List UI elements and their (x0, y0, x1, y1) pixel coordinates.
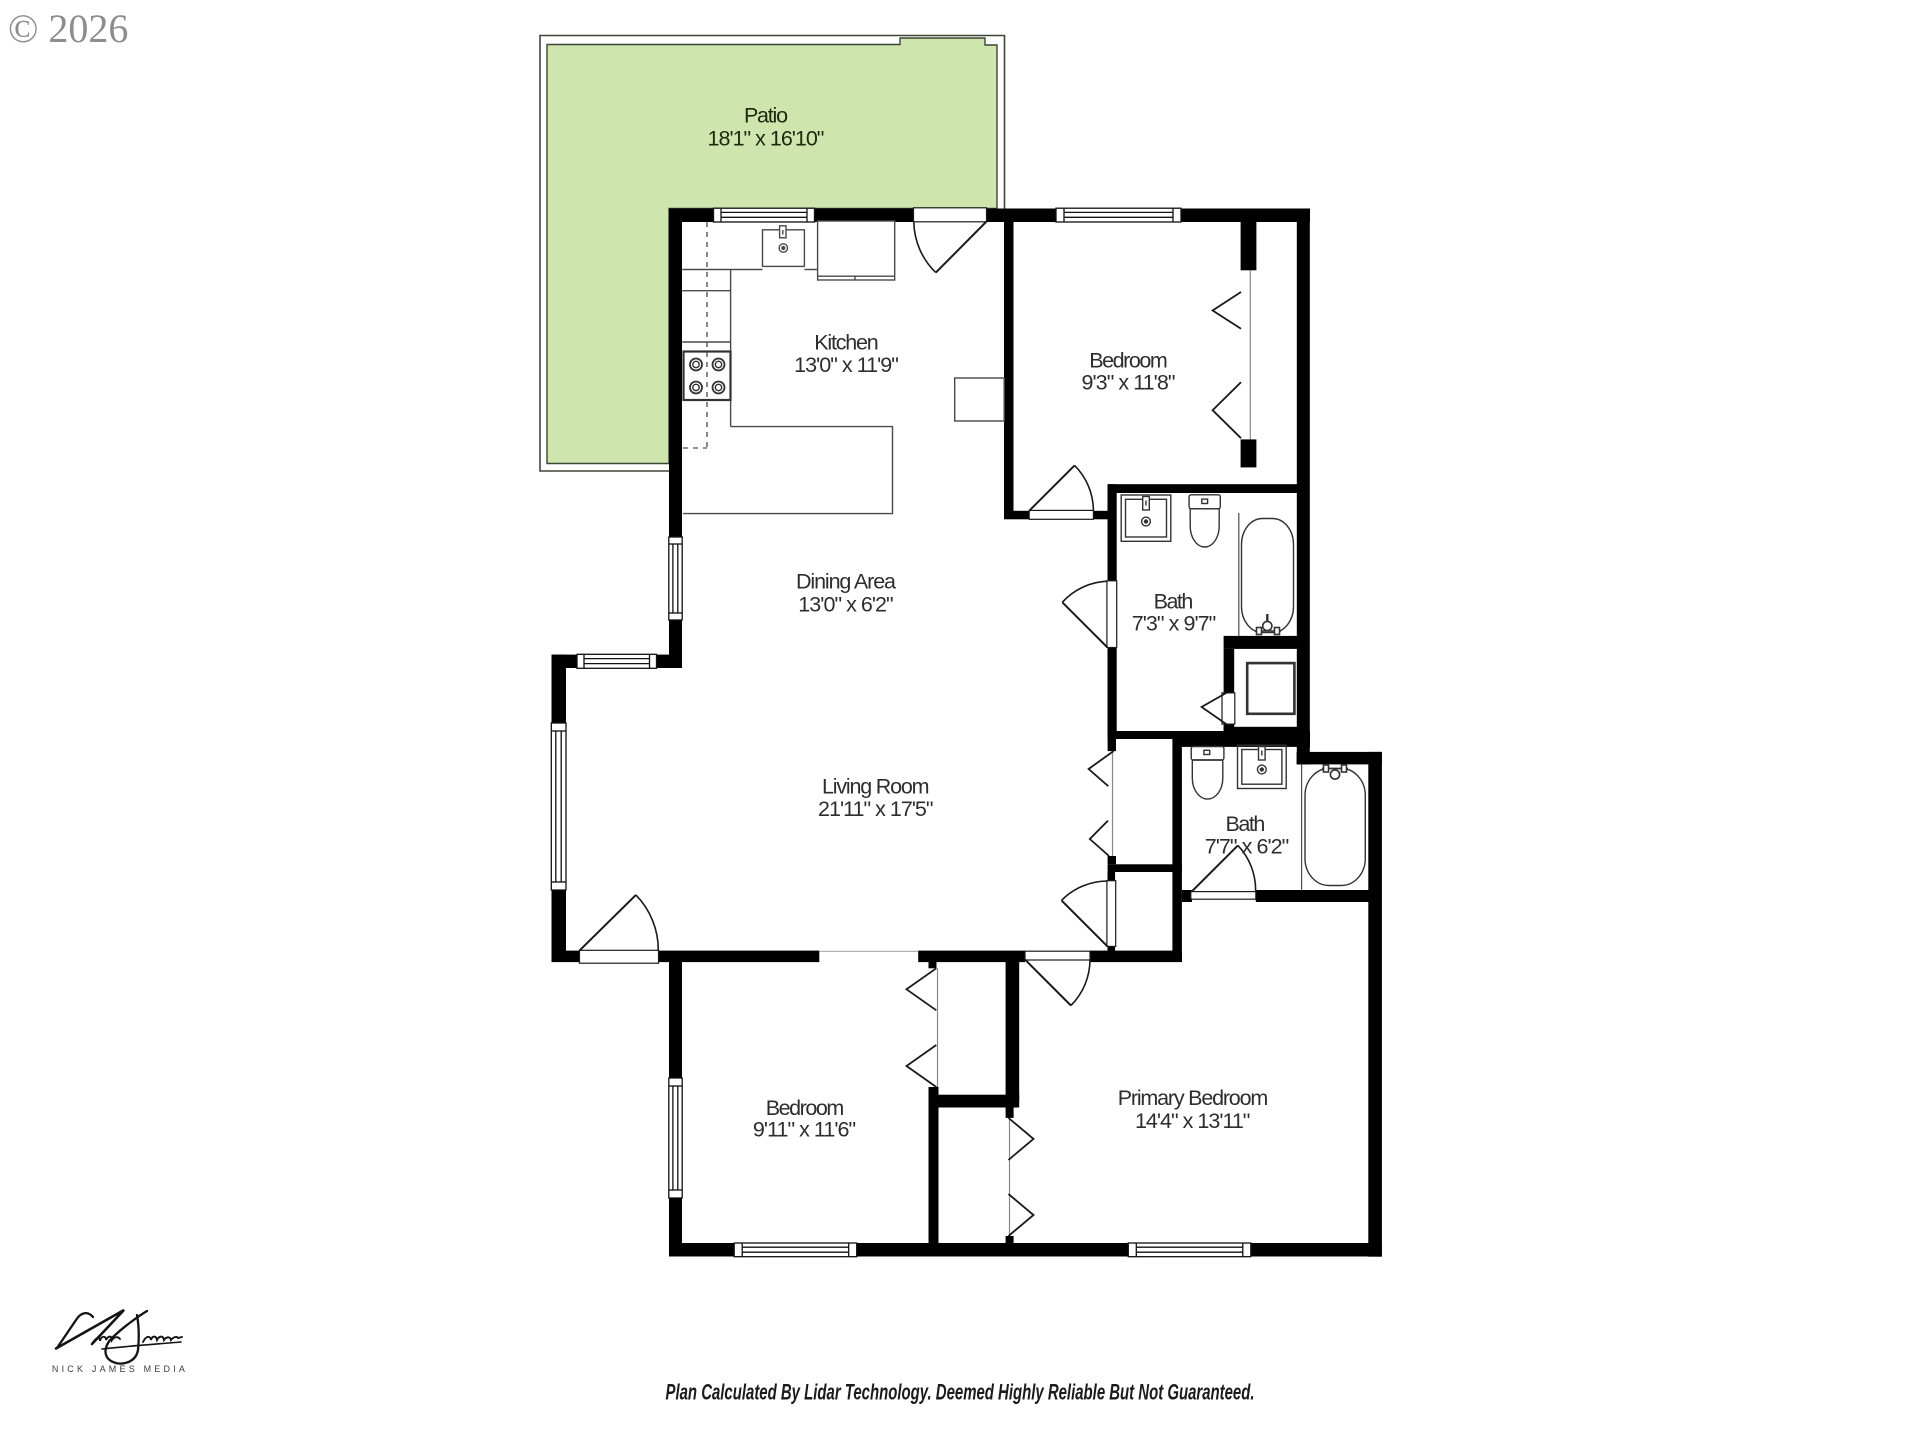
svg-text:9'11" x 11'6": 9'11" x 11'6" (753, 1118, 856, 1142)
svg-text:© 2026: © 2026 (8, 6, 128, 51)
svg-text:7'7" x 6'2": 7'7" x 6'2" (1205, 835, 1290, 859)
svg-text:14'4" x 13'11": 14'4" x 13'11" (1135, 1109, 1251, 1133)
svg-text:Bedroom: Bedroom (1089, 349, 1168, 373)
svg-text:NICK JAMES MEDIA: NICK JAMES MEDIA (52, 1364, 188, 1374)
svg-text:7'3" x 9'7": 7'3" x 9'7" (1132, 612, 1217, 636)
svg-text:Dining Area: Dining Area (796, 569, 896, 593)
svg-text:Bath: Bath (1226, 812, 1266, 836)
svg-text:13'0" x 11'9": 13'0" x 11'9" (794, 353, 899, 377)
svg-text:Patio: Patio (744, 104, 788, 128)
svg-text:Primary Bedroom: Primary Bedroom (1118, 1086, 1269, 1110)
svg-text:Kitchen: Kitchen (814, 331, 879, 355)
svg-text:Bedroom: Bedroom (766, 1096, 845, 1120)
svg-text:Bath: Bath (1154, 590, 1194, 614)
svg-text:21'11" x 17'5": 21'11" x 17'5" (818, 797, 934, 821)
svg-text:Living Room: Living Room (822, 775, 930, 799)
svg-text:Plan Calculated By Lidar Techn: Plan Calculated By Lidar Technology. Dee… (666, 1380, 1255, 1405)
svg-text:18'1" x 16'10": 18'1" x 16'10" (708, 127, 825, 151)
svg-text:9'3" x 11'8": 9'3" x 11'8" (1082, 371, 1176, 395)
svg-text:13'0" x 6'2": 13'0" x 6'2" (798, 592, 893, 616)
